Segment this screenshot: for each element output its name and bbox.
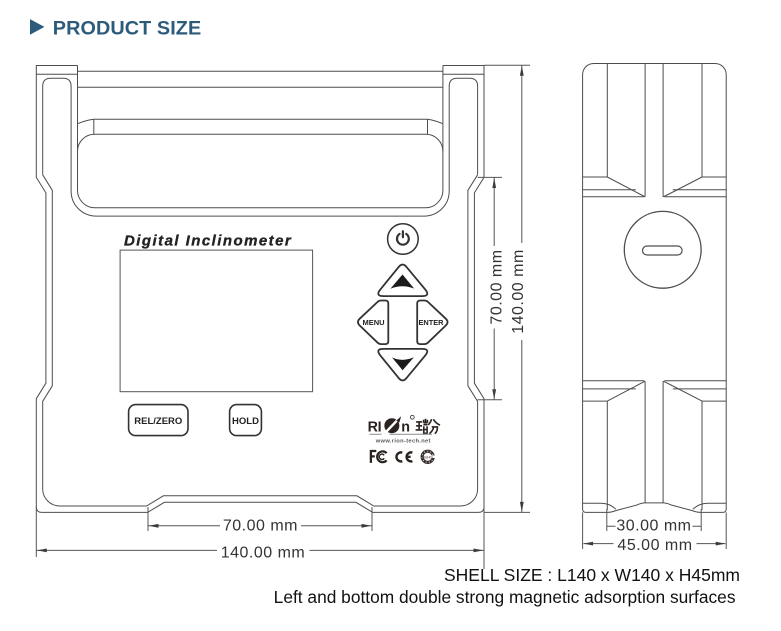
svg-text:HOLD: HOLD [232,416,259,427]
svg-text:70.00 mm: 70.00 mm [223,518,298,535]
svg-text:SHELL SIZE : L140 x W140 x H45: SHELL SIZE : L140 x W140 x H45mm [444,565,740,585]
svg-text:PRODUCT SIZE: PRODUCT SIZE [53,17,201,39]
svg-text:140.00 mm: 140.00 mm [510,249,527,334]
svg-text:n: n [401,419,410,435]
svg-text:www.rion-tech.net: www.rion-tech.net [375,438,431,444]
svg-text:140.00 mm: 140.00 mm [221,545,306,562]
svg-text:MENU: MENU [362,318,384,327]
svg-text:RoHS: RoHS [422,454,433,459]
svg-text:45.00 mm: 45.00 mm [617,537,692,554]
svg-text:Left and bottom double strong: Left and bottom double strong magnetic a… [274,587,736,607]
svg-text:ENTER: ENTER [418,318,444,327]
svg-text:70.00 mm: 70.00 mm [489,249,506,324]
svg-text:Digital Inclinometer: Digital Inclinometer [124,232,292,249]
svg-text:RI: RI [368,419,382,435]
svg-text:30.00 mm: 30.00 mm [616,518,691,535]
svg-text:REL/ZERO: REL/ZERO [134,416,182,427]
